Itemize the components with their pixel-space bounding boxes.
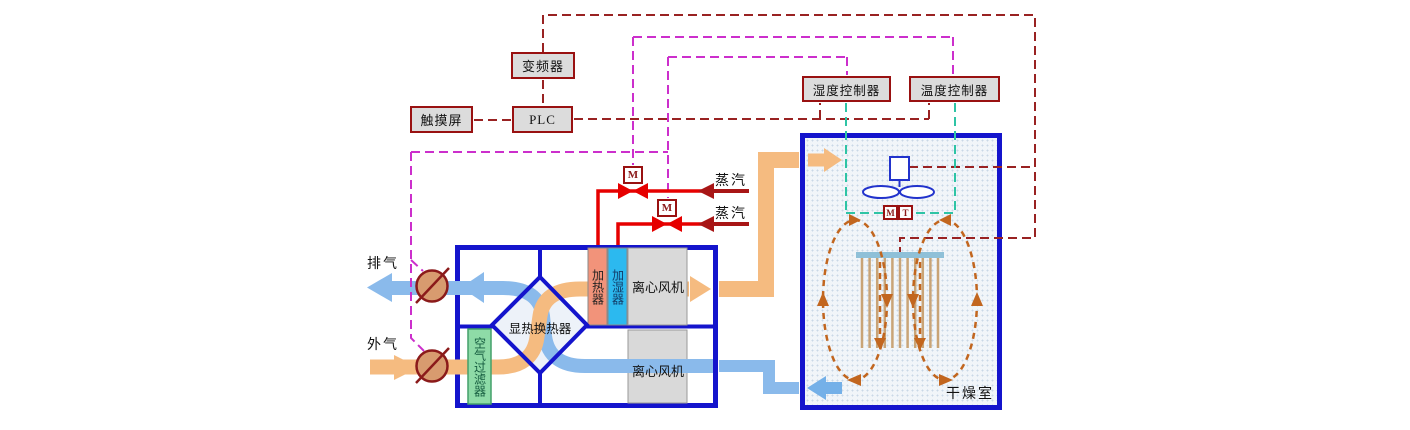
outside-air-arrowhead [394,355,419,380]
drying-room-inlet-arrow [808,148,842,172]
outside-air-label: 外气 [367,334,399,354]
exhaust-damper-icon [416,268,449,303]
exhaust-air-label: 排气 [367,253,399,273]
steam-label-1: 蒸汽 [715,170,747,190]
exhaust-arrowhead [367,273,392,302]
heater-label: 加热器 [588,252,607,322]
heating-rods [862,258,938,348]
steam-valve-2-icon [652,216,682,232]
steam-pipes [598,191,702,245]
exhaust-inner-arrowhead [461,272,484,303]
plc-box: PLC [512,106,573,133]
humidifier-label: 加湿器 [608,252,627,322]
humidity-controller-box: 湿度控制器 [802,76,891,102]
valve2-actuator-box: M [657,199,677,217]
return-duct-from-drying-room [719,366,799,388]
temperature-sensor-box: T [898,205,913,220]
steam-label-2: 蒸汽 [715,203,747,223]
heater-bar [856,252,944,258]
touchscreen-box: 触摸屏 [410,106,473,133]
outside-air-damper-icon [416,348,449,383]
valve1-actuator-box: M [623,166,643,184]
circulation-fan-icon [863,157,934,198]
hvac-drying-system-diagram: 变频器 触摸屏 PLC 湿度控制器 温度控制器 M M M T 排气 外气 蒸汽… [0,0,1410,430]
fan-top-label: 离心风机 [630,277,686,296]
drying-room-outlet-arrow [807,376,842,400]
steam-valve-1-icon [618,183,648,199]
heat-exchanger-label: 显热换热器 [503,318,577,337]
vfd-box: 变频器 [511,52,575,79]
supply-inner-arrowhead [690,276,711,302]
temperature-controller-box: 温度控制器 [909,76,1000,102]
moisture-sensor-box: M [883,205,898,220]
air-filter-label: 空气过滤器 [468,331,491,403]
drying-room-label: 干燥室 [946,383,994,403]
diagram-graphics [0,0,1410,430]
fan-bottom-label: 离心风机 [630,361,686,380]
